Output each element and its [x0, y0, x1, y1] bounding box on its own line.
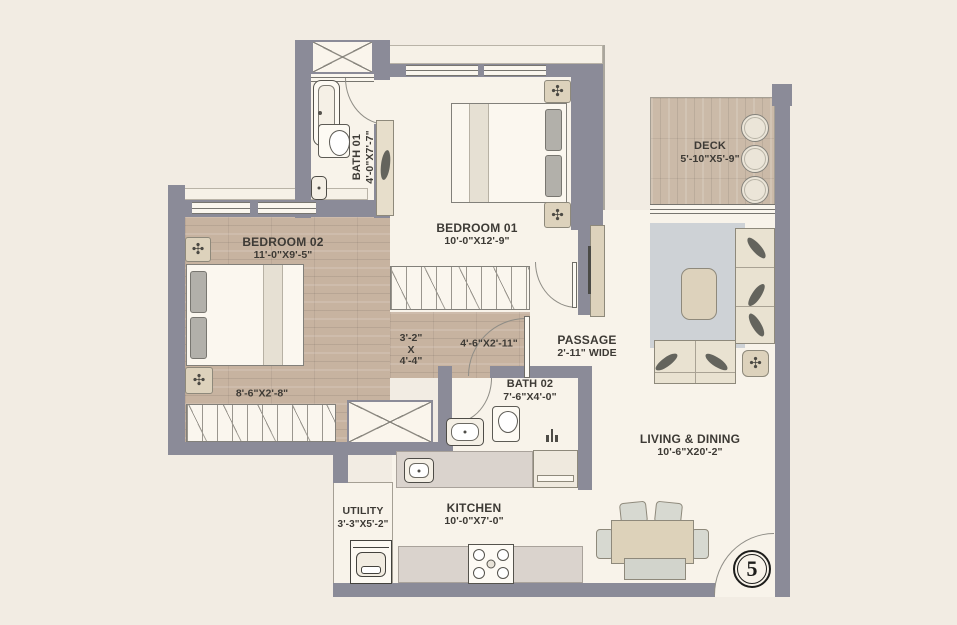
fan-icon: ✣	[749, 356, 762, 371]
tv-console	[590, 225, 605, 317]
basin-bath02	[446, 418, 484, 446]
room-label-bath02: BATH 02 7'-6"X4'-0"	[503, 378, 556, 404]
stove	[468, 544, 514, 584]
fan-icon: ✣	[193, 373, 206, 388]
room-label-bedroom02: BEDROOM 02 11'-0"X9'-5"	[242, 236, 323, 262]
wall-shaft-right	[374, 40, 390, 80]
fan-icon: ✣	[192, 242, 205, 257]
pillow	[545, 155, 562, 197]
wall-utility-step	[333, 453, 348, 483]
exterior-line-vertical	[603, 45, 605, 210]
nightstand-bedroom01-bottom: ✣	[544, 202, 571, 228]
unit-number-ring	[737, 554, 767, 584]
window-bedroom02-b	[258, 202, 316, 214]
wall-deck-stub	[772, 84, 792, 106]
room-label-kitchen: KITCHEN 10'-0"X7'-0"	[444, 502, 503, 528]
refrigerator	[533, 450, 578, 488]
room-label-passage: PASSAGE 2'-11" WIDE	[557, 334, 616, 360]
pillow	[190, 317, 207, 359]
wall-bath01-left	[295, 40, 311, 218]
window-bedroom01-b	[484, 65, 546, 76]
fan-icon: ✣	[551, 208, 564, 223]
parapet-bedroom02	[183, 188, 368, 200]
nightstand-bedroom02-bottom: ✣	[185, 367, 213, 394]
parapet-top	[389, 45, 603, 64]
dimension-note-passage-b: 4'-6"X2'-11"	[460, 338, 518, 350]
unit-number-badge: 5	[733, 550, 771, 588]
window-bedroom01-a	[406, 65, 478, 76]
wardrobe-bedroom01	[390, 266, 530, 310]
room-label-bedroom01: BEDROOM 01 10'-0"X12'-9"	[436, 222, 517, 248]
nightstand-bedroom01-top: ✣	[544, 80, 571, 103]
wall-bedroom02-left	[168, 185, 185, 455]
tv-screen	[588, 246, 591, 294]
pillow	[190, 271, 207, 313]
room-label-living-dining: LIVING & DINING 10'-6"X20'-2"	[640, 433, 740, 459]
wall-bedroom01-right	[571, 64, 603, 230]
fan-icon: ✣	[551, 84, 564, 99]
pillow	[545, 109, 562, 151]
coffee-table	[681, 268, 717, 320]
duct-shaft-top	[311, 40, 374, 74]
side-table: ✣	[742, 350, 769, 377]
dimension-note-passage-a: 3'-2" X 4'-4"	[400, 333, 423, 368]
duct-shaft-bottom	[347, 400, 433, 444]
door-leaf-bedroom01	[572, 262, 577, 308]
washing-machine	[350, 540, 392, 584]
basin-bath01	[311, 176, 327, 200]
toilet-bath01	[318, 124, 350, 158]
deck-planter	[741, 145, 769, 173]
wall-kitchen-right	[578, 366, 592, 490]
wall-bottom	[333, 583, 715, 597]
room-label-bath01: BATH 01 4'-0"X7'-7"	[351, 130, 377, 183]
door-leaf-bedroom02	[524, 316, 530, 378]
room-label-deck: DECK 5'-10"X5'-9"	[680, 140, 739, 166]
kitchen-sink	[404, 458, 434, 483]
toilet-bath02	[492, 406, 520, 442]
deck-planter	[741, 176, 769, 204]
room-label-utility: UTILITY 3'-3"X5'-2"	[338, 505, 389, 531]
dimension-note-wardrobe: 8'-6"X2'-8"	[236, 388, 288, 400]
dining-bench	[624, 558, 686, 580]
shower-fitting	[546, 426, 566, 442]
deck-sliding-door	[650, 204, 775, 214]
wardrobe-bedroom02	[186, 404, 336, 442]
nightstand-bedroom02-top: ✣	[185, 237, 211, 262]
window-bedroom02-a	[192, 202, 250, 214]
floor-plan: ✣ ✣ ✣ 5	[0, 0, 957, 625]
wall-right-main	[775, 96, 790, 597]
deck-planter	[741, 114, 769, 142]
